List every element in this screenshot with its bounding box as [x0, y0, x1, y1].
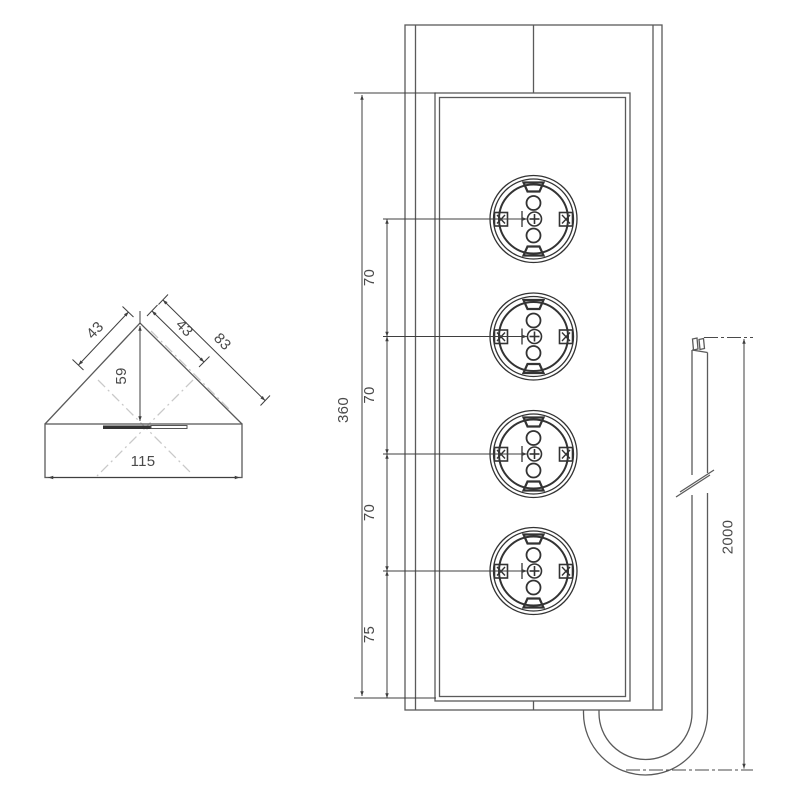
dim-width: 115	[49, 453, 240, 478]
dim-label-bottom-offset: 75	[361, 626, 378, 643]
dim-label-total-height: 360	[335, 397, 352, 423]
dim-left-segment: 43	[73, 307, 134, 371]
dim-label-cable-length: 2000	[720, 520, 737, 555]
dim-socket-chain: 70 70 70 75	[361, 219, 387, 698]
dim-label-width: 115	[131, 453, 156, 470]
dim-label-spacing-1: 70	[361, 269, 378, 286]
front-view: 360 70 70 70 75	[335, 25, 662, 710]
dim-right-edge: 83	[159, 295, 271, 406]
cable-wire-ends	[693, 338, 705, 350]
dim-label-spacing-3: 70	[361, 504, 378, 521]
dim-label-spacing-2: 70	[361, 386, 378, 403]
side-view: 43 43 83 59 115	[45, 295, 270, 478]
cable-sheath	[584, 350, 708, 775]
dim-label-height: 59	[113, 367, 130, 384]
dim-height: 59	[113, 326, 140, 421]
technical-drawing: 43 43 83 59 115	[0, 0, 800, 800]
side-view-centerlines	[97, 331, 229, 476]
dim-cable-length: 2000	[626, 338, 753, 771]
dim-total-height: 360	[335, 93, 436, 698]
dim-label-right-segment: 43	[172, 316, 196, 340]
side-view-slot	[103, 426, 187, 430]
cable-break-symbol	[676, 470, 714, 497]
